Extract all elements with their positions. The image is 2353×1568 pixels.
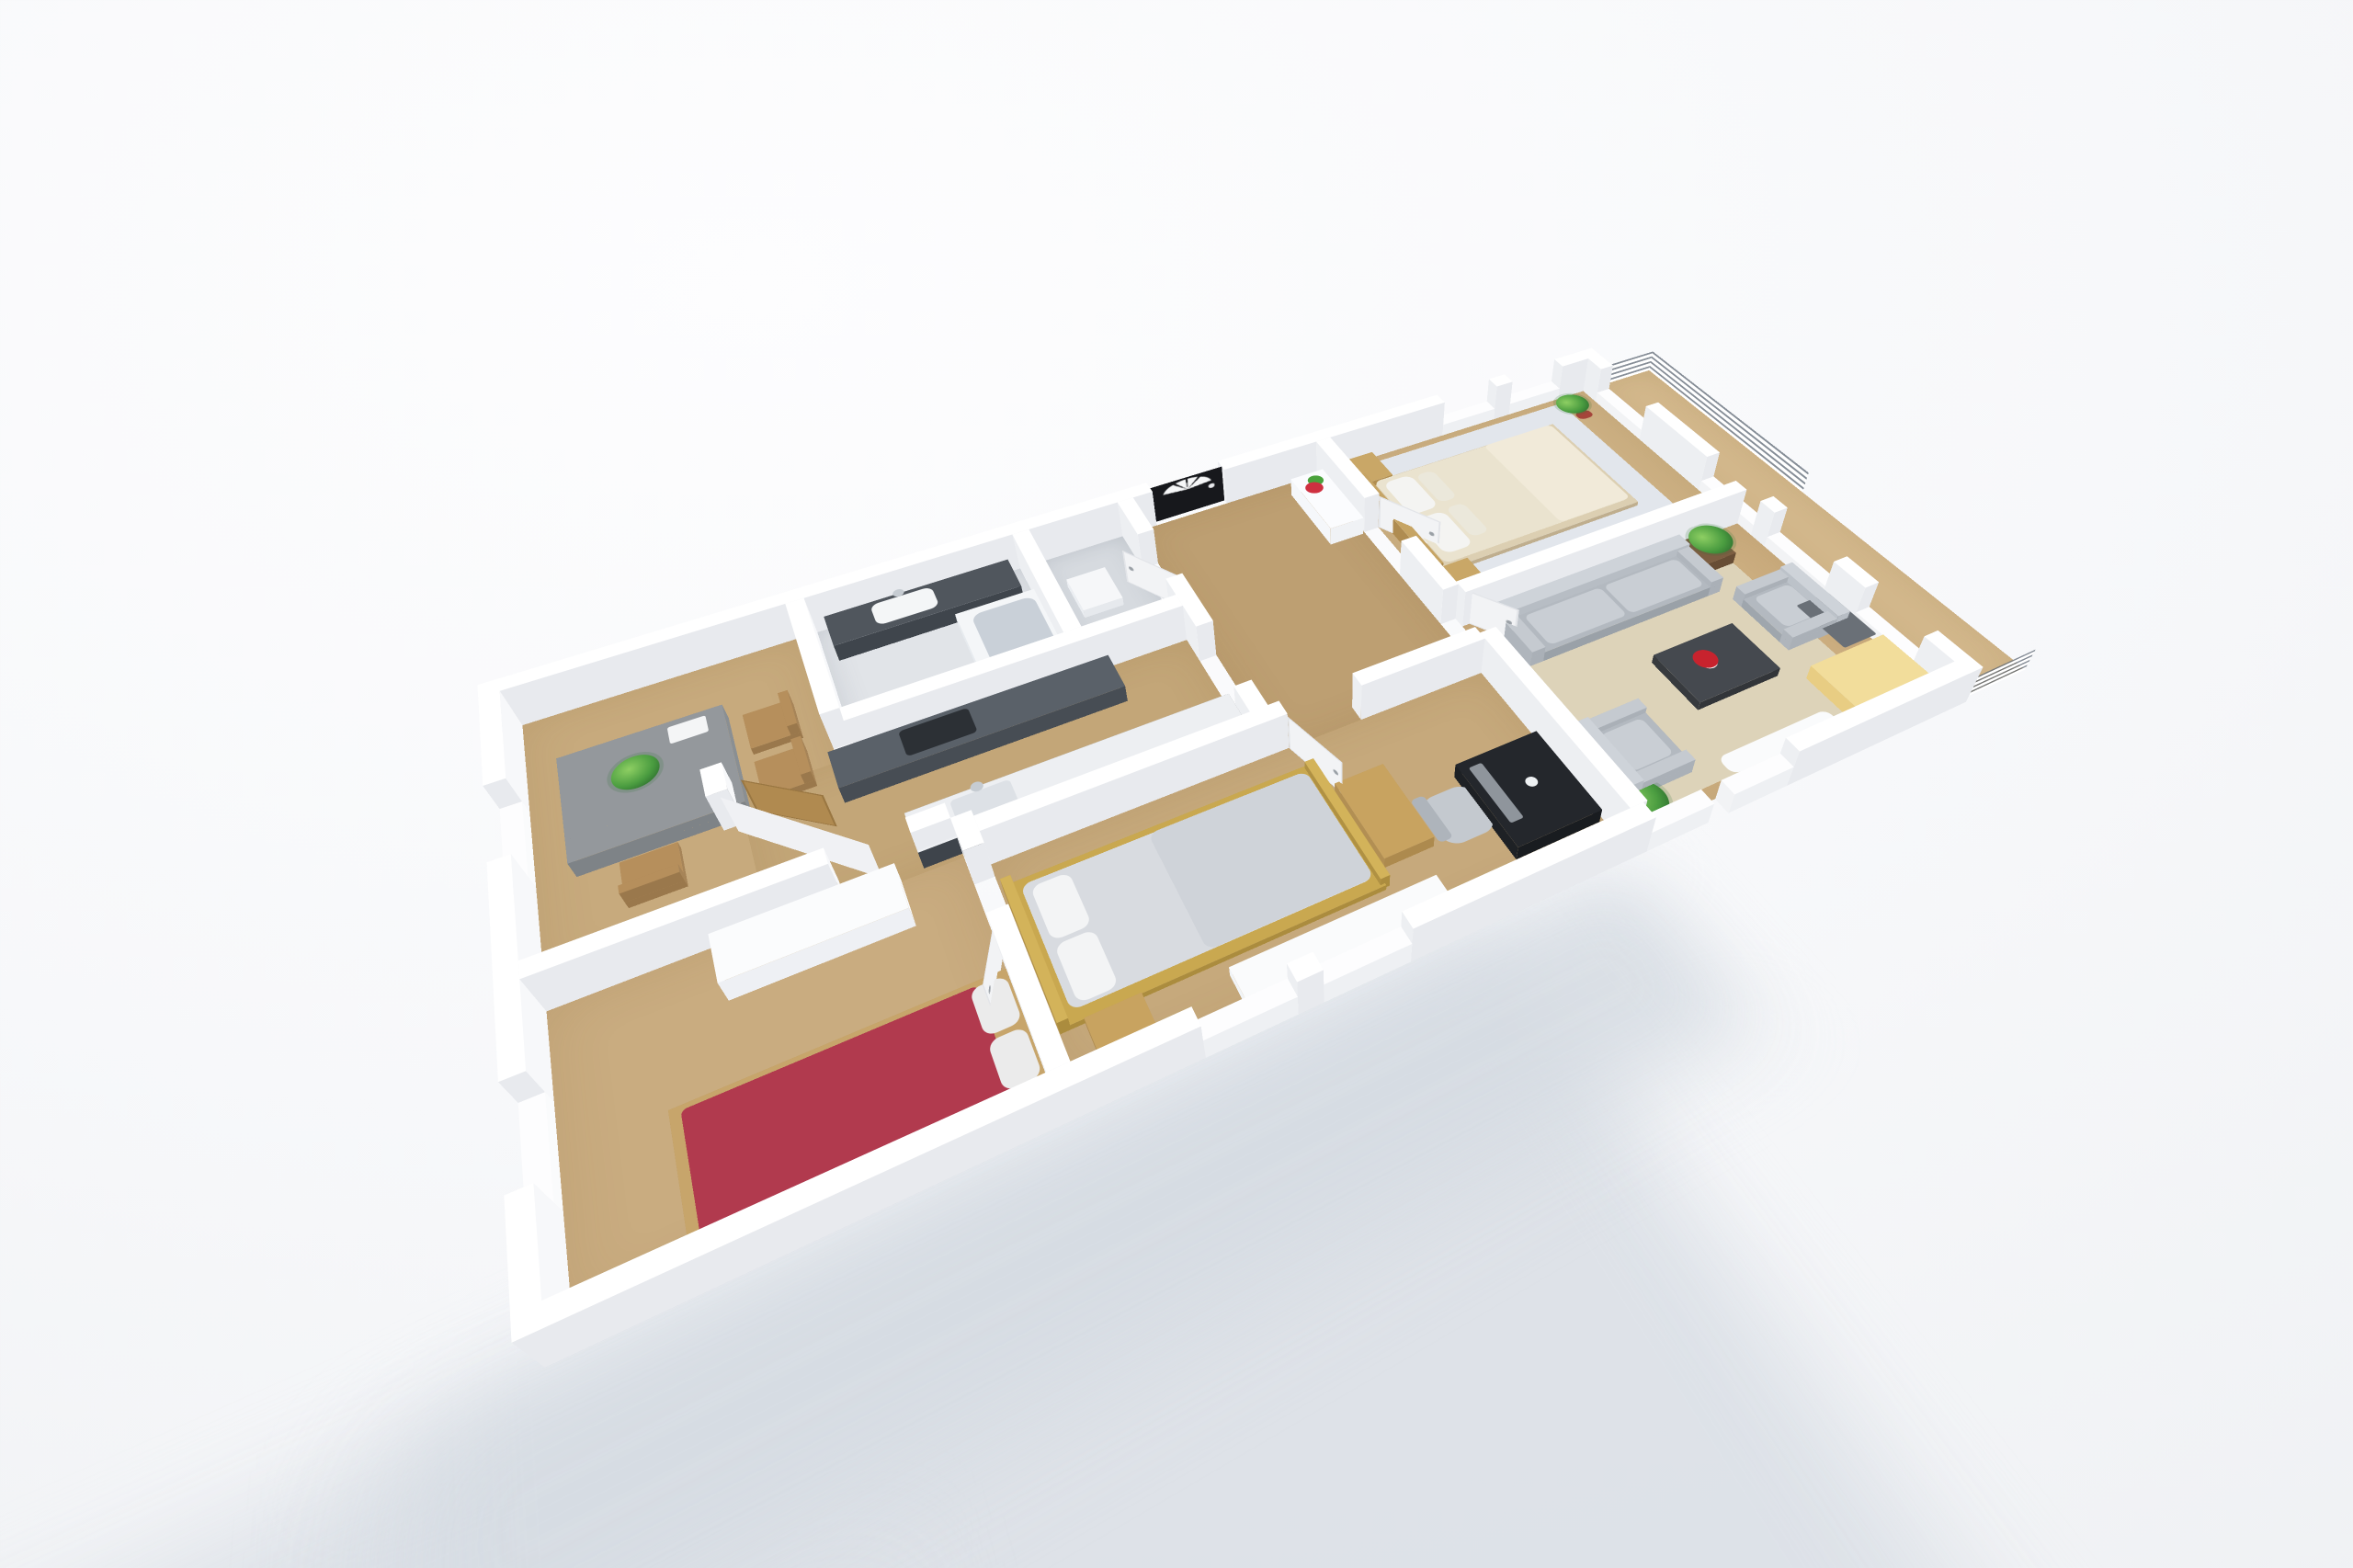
floorplan-3d-scene: [473, 342, 2110, 1477]
wall-bath-hall-south-face: [1196, 620, 1216, 661]
floorplan-viewport[interactable]: [0, 0, 2353, 1568]
wall-hall-master-south-face: [1364, 494, 1379, 532]
